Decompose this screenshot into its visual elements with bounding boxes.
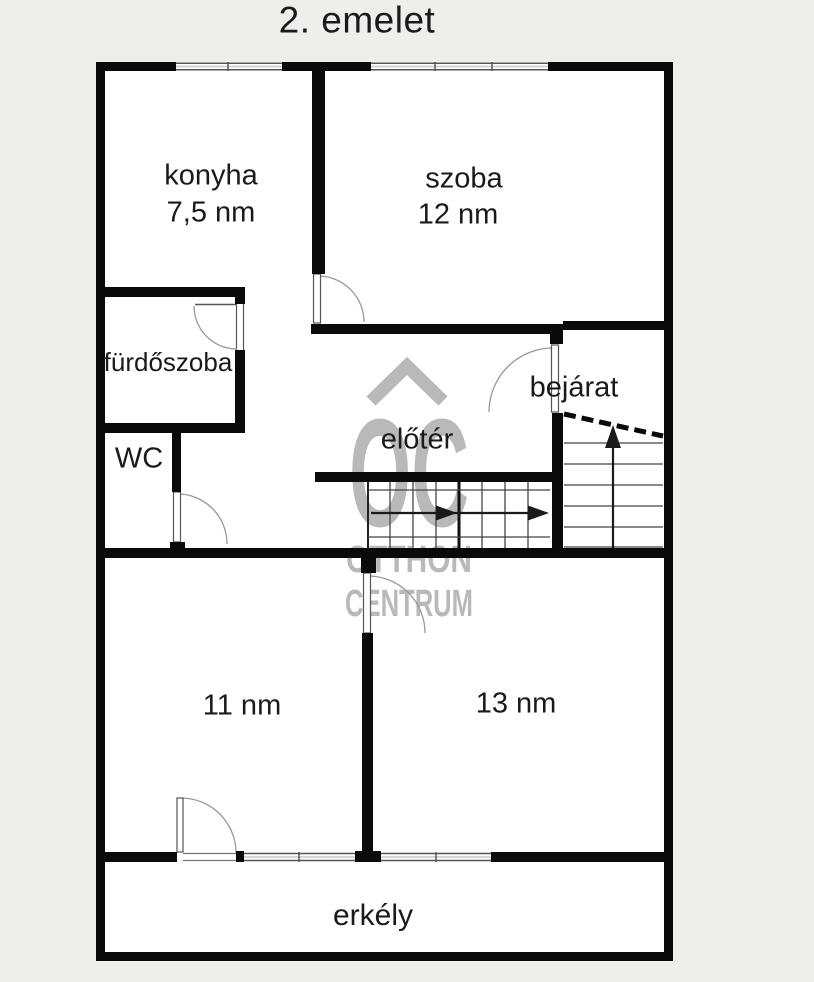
wall-outer-right	[664, 62, 673, 961]
wall-entrance-top	[563, 321, 664, 330]
room-area-konyha: 7,5 nm	[167, 199, 256, 228]
wall-bath-bottom	[96, 423, 245, 433]
wall-outer-bottom	[96, 952, 673, 961]
wall-wc-stub	[172, 423, 181, 492]
wall-room11-room13	[362, 633, 373, 853]
room-area-room13: 13 nm	[476, 690, 557, 719]
page-title: 2. emelet	[279, 2, 436, 39]
floorplan-canvas: OC OTTHON CENTRUM	[0, 0, 814, 982]
room-label-konyha: konyha	[164, 162, 258, 191]
wall-konyha-szoba	[312, 62, 325, 274]
room-label-erkely: erkély	[333, 901, 413, 931]
floorplan-page: OC OTTHON CENTRUM	[0, 0, 814, 982]
wall-post-room-door	[361, 548, 376, 573]
wall-top-seg2	[282, 62, 371, 71]
wall-bath-right-upper	[235, 297, 245, 304]
wall-rooms-bottom-right	[491, 852, 673, 862]
wall-bath-right-lower	[235, 350, 245, 433]
wall-rooms-bottom-mid	[355, 851, 381, 862]
wall-top-seg3	[548, 62, 673, 71]
wall-eloter-stairs	[315, 472, 553, 482]
window-szoba	[371, 62, 548, 71]
wall-wc-post	[170, 542, 185, 558]
wall-szoba-bottom	[311, 324, 550, 334]
wall-top-seg1	[96, 62, 176, 71]
room-label-eloter: előtér	[381, 426, 454, 455]
room-label-furdoszoba: fürdőszoba	[104, 349, 233, 375]
room-label-bejarat: bejárat	[530, 374, 619, 403]
wall-stairwell	[552, 413, 563, 558]
room-label-szoba: szoba	[425, 165, 502, 194]
window-konyha	[176, 62, 282, 71]
room-area-room11: 11 nm	[203, 692, 281, 721]
window-room11	[244, 852, 355, 862]
wall-post-bejarat	[550, 324, 563, 344]
room-label-wc: WC	[115, 445, 163, 474]
window-room13	[380, 852, 491, 862]
wall-outer-left	[96, 62, 105, 961]
wall-rooms-bottom-left	[96, 852, 177, 862]
wall-bath-top	[96, 287, 245, 297]
wall-balcony-door-jamb	[236, 851, 244, 862]
room-area-szoba: 12 nm	[418, 201, 499, 230]
